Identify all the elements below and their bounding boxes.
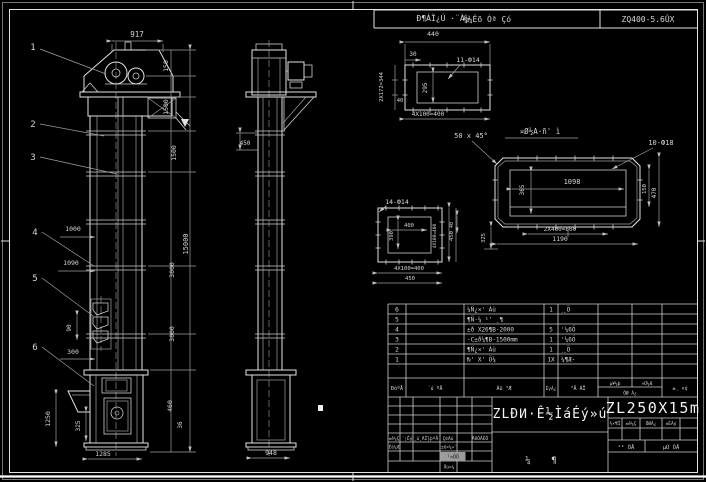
square-bottom-pitch: 4X100=400 [394,266,424,272]
dim-36: 36 [177,421,184,429]
stage-col-3: ÖØÁ¿ [646,420,657,427]
sig-process-label: ¹¤ÒÕ [447,454,459,461]
side-elevation-view: 450 948 [236,40,323,458]
bom-name: ¶Ñ¿×' Áù [467,347,496,354]
casing-label: ¤Ø½A·ñ' ì [520,127,561,136]
stage-col-2: ±ê¼Ç [626,420,637,427]
casing-detail-view: ¤Ø½A·ñ' ì 50 x 45° 10-Ф18 1098 365 150 4… [449,127,674,249]
balloon-4: 4 [32,228,37,238]
bom-material: '¼6Ö [561,337,576,344]
dim-90: 90 [66,324,73,332]
flange-bottom-pitch: 4X100=400 [412,111,445,118]
square-flange-detail-view: 14-Ф14 400 390 4X100=400 450 4X100=400 4… [376,198,457,283]
bom-seq: 5 [395,316,399,324]
sig-approve-label: Åú×¼ [444,464,455,471]
dim-400: 400 [404,223,414,229]
bom-name: ¼Ñ¿×' Áù [467,307,496,314]
dim-150: 150 [162,60,170,72]
bom-material: ¼¶Æ· [561,357,575,364]
dim-390: 390 [389,231,395,241]
bom-row: 5 ¶Ñ·¼ ¹' ¸¶ [395,316,503,324]
dim-40-casing: 40 [449,222,455,228]
balloon-5: 5 [32,274,37,284]
bom-qty: 1 [549,337,553,344]
sig-date-label: ÄêÔÂÈÕ [472,434,489,442]
bom-seq: 1 [395,356,399,364]
bom-qty: 5 [549,327,553,334]
front-view-balloons: 1 2 3 4 5 6 [30,43,117,386]
bom-material: ˼¸Ö [561,307,571,314]
dim-450-right: 450 [449,231,455,241]
bom-name: ·C±ð¼¶B-1500mm [467,337,518,344]
sig-count-label: ´¦Êý [402,434,413,442]
bom-header-seq: ÐòºÅ [391,385,403,392]
bom-material: '¼6Ö [561,327,576,334]
front-elevation-view [68,42,190,456]
dim-40: 40 [397,98,404,104]
cad-drawing-canvas[interactable]: ¼¼Êõ Òª Çó ZQ400-5.6ÛX [0,0,706,482]
bom-name: ±ð X26¶B-2000 [467,327,514,334]
dim-1285: 1285 [95,450,111,458]
flange-detail-title: Ð¶ÁÏ¿Ú ·¨À¼ [417,12,470,23]
tech-note-label: ¼¼Êõ Òª Çó [463,13,511,24]
square-right-pitch: 4X100=400 [432,224,438,249]
bom-header-total-weight: ×Ü¼Æ [642,380,653,387]
bom-material: ˼¸Ö [561,347,571,354]
bom-name: Ƕ' X' Ö¼ [467,357,496,364]
dim-450-side: 450 [240,140,251,147]
title-sub-char-right: ¶ [551,456,556,466]
stage-col-4: ±ÈÀý [666,419,677,427]
balloon-3: 3 [30,153,35,163]
dim-460: 460 [166,400,174,412]
dim-917: 917 [130,30,144,39]
bom-row: 4 ±ð X26¶B-2000 5 '¼6Ö [395,326,576,334]
chamfer-label: 50 x 45° [454,132,488,140]
sig-standard-label: ±ê×¼»¯ [441,444,458,451]
bom-header-unit-weight: µ¥¼þ [610,381,621,387]
bom-header-code: ´ú ºÅ [427,385,442,392]
balloon-1: 1 [30,43,35,53]
bom-qty: 1 [549,307,553,314]
drawing-main-title: ZLÐͶ·Ê½ÌáÉý»ú [493,406,608,422]
bom-header-name: Ãû ³Æ [496,385,511,392]
dim-15000: 15000 [182,233,190,254]
sig-sign-label: Ç©Ãû [443,435,454,442]
bom-header-material: ²Ä ÁÏ [570,385,585,392]
dim-325-casing: 325 [481,233,487,243]
model-designation: ZL250X15m [606,399,701,417]
cad-viewport[interactable]: ¼¼Êõ Òª Çó ZQ400-5.6ÛX [0,0,706,482]
flange-left-pitch: 2X172=344 [379,71,385,101]
bom-header-remark: ±¸ ×¢ [672,386,687,392]
flange-holes-label: 11-Ф14 [456,56,480,64]
dim-1090: 1090 [63,259,79,267]
bom-seq: 6 [395,306,399,314]
dim-365: 365 [519,184,526,195]
drive-spec-label: ZQ400-5.6ÛX [622,13,675,24]
balloon-2: 2 [30,120,35,130]
sig-file-label: ¸ü¸ÄÎļþºÅ [414,435,439,442]
title-sub-char-left: ¼ [525,456,530,466]
dim-300: 300 [67,348,79,356]
casing-holes-label: 10-Ф18 [648,139,673,147]
dim-150-casing: 150 [642,184,648,194]
dim-948: 948 [265,449,277,457]
stage-col-1: ½×¶Î [610,420,621,427]
dim-1500-lower: 1500 [170,145,178,161]
bom-name: ¶Ñ·¼ ¹' ¸¶ [467,317,504,324]
front-view-dimensions: 917 150 1500 1500 3000 3000 15000 460 36… [44,30,196,459]
casing-pitch: 2X400=800 [544,226,577,233]
dim-30: 30 [409,51,417,58]
bom-header-qty: ÊýÁ¿ [546,384,557,392]
dim-1500-upper: 1500 [162,99,170,115]
bom-table: ÐòºÅ ´ú ºÅ Ãû ³Æ ÊýÁ¿ ²Ä ÁÏ µ¥¼þ ×Ü¼Æ ÖØ… [388,304,698,397]
dim-1190: 1190 [552,235,568,243]
square-holes-label: 14-Ф14 [385,198,409,206]
bom-qty: 1X [547,357,555,364]
sheet-number-label: µÚ ÕÅ [663,444,680,451]
sheet-total-label: ¹² ÕÅ [618,444,635,451]
balloon-6: 6 [32,343,37,353]
bom-seq: 2 [395,346,399,354]
bom-seq: 4 [395,326,399,334]
bom-qty: 1 [549,347,553,354]
dim-470: 470 [651,187,658,198]
bom-seq: 3 [395,336,399,344]
bom-header-weight: ÖØ Á¿ [623,390,637,397]
dim-440: 440 [427,30,439,38]
sig-design-label: Éè¼Æ [389,443,400,451]
dim-1250: 1250 [44,411,52,427]
bom-row: 1 Ƕ' X' Ö¼ 1X ¼¶Æ· [395,356,575,364]
title-block: ±ê¼Ç ´¦Êý ¸ü¸ÄÎļþºÅ Ç©Ãû ÄêÔÂÈÕ Éè¼Æ ±ê×… [388,397,700,472]
sig-mark-label: ±ê¼Ç [389,435,400,442]
dim-3000-b: 3000 [168,326,176,342]
dim-325: 325 [75,420,82,431]
dim-3000-a: 3000 [168,262,176,278]
dim-450-bottom: 450 [405,276,415,282]
dim-295: 295 [422,82,429,93]
bom-row: 3 ·C±ð¼¶B-1500mm 1 '¼6Ö [395,336,576,344]
dim-1098: 1098 [564,178,581,186]
dim-1000: 1000 [65,225,81,233]
